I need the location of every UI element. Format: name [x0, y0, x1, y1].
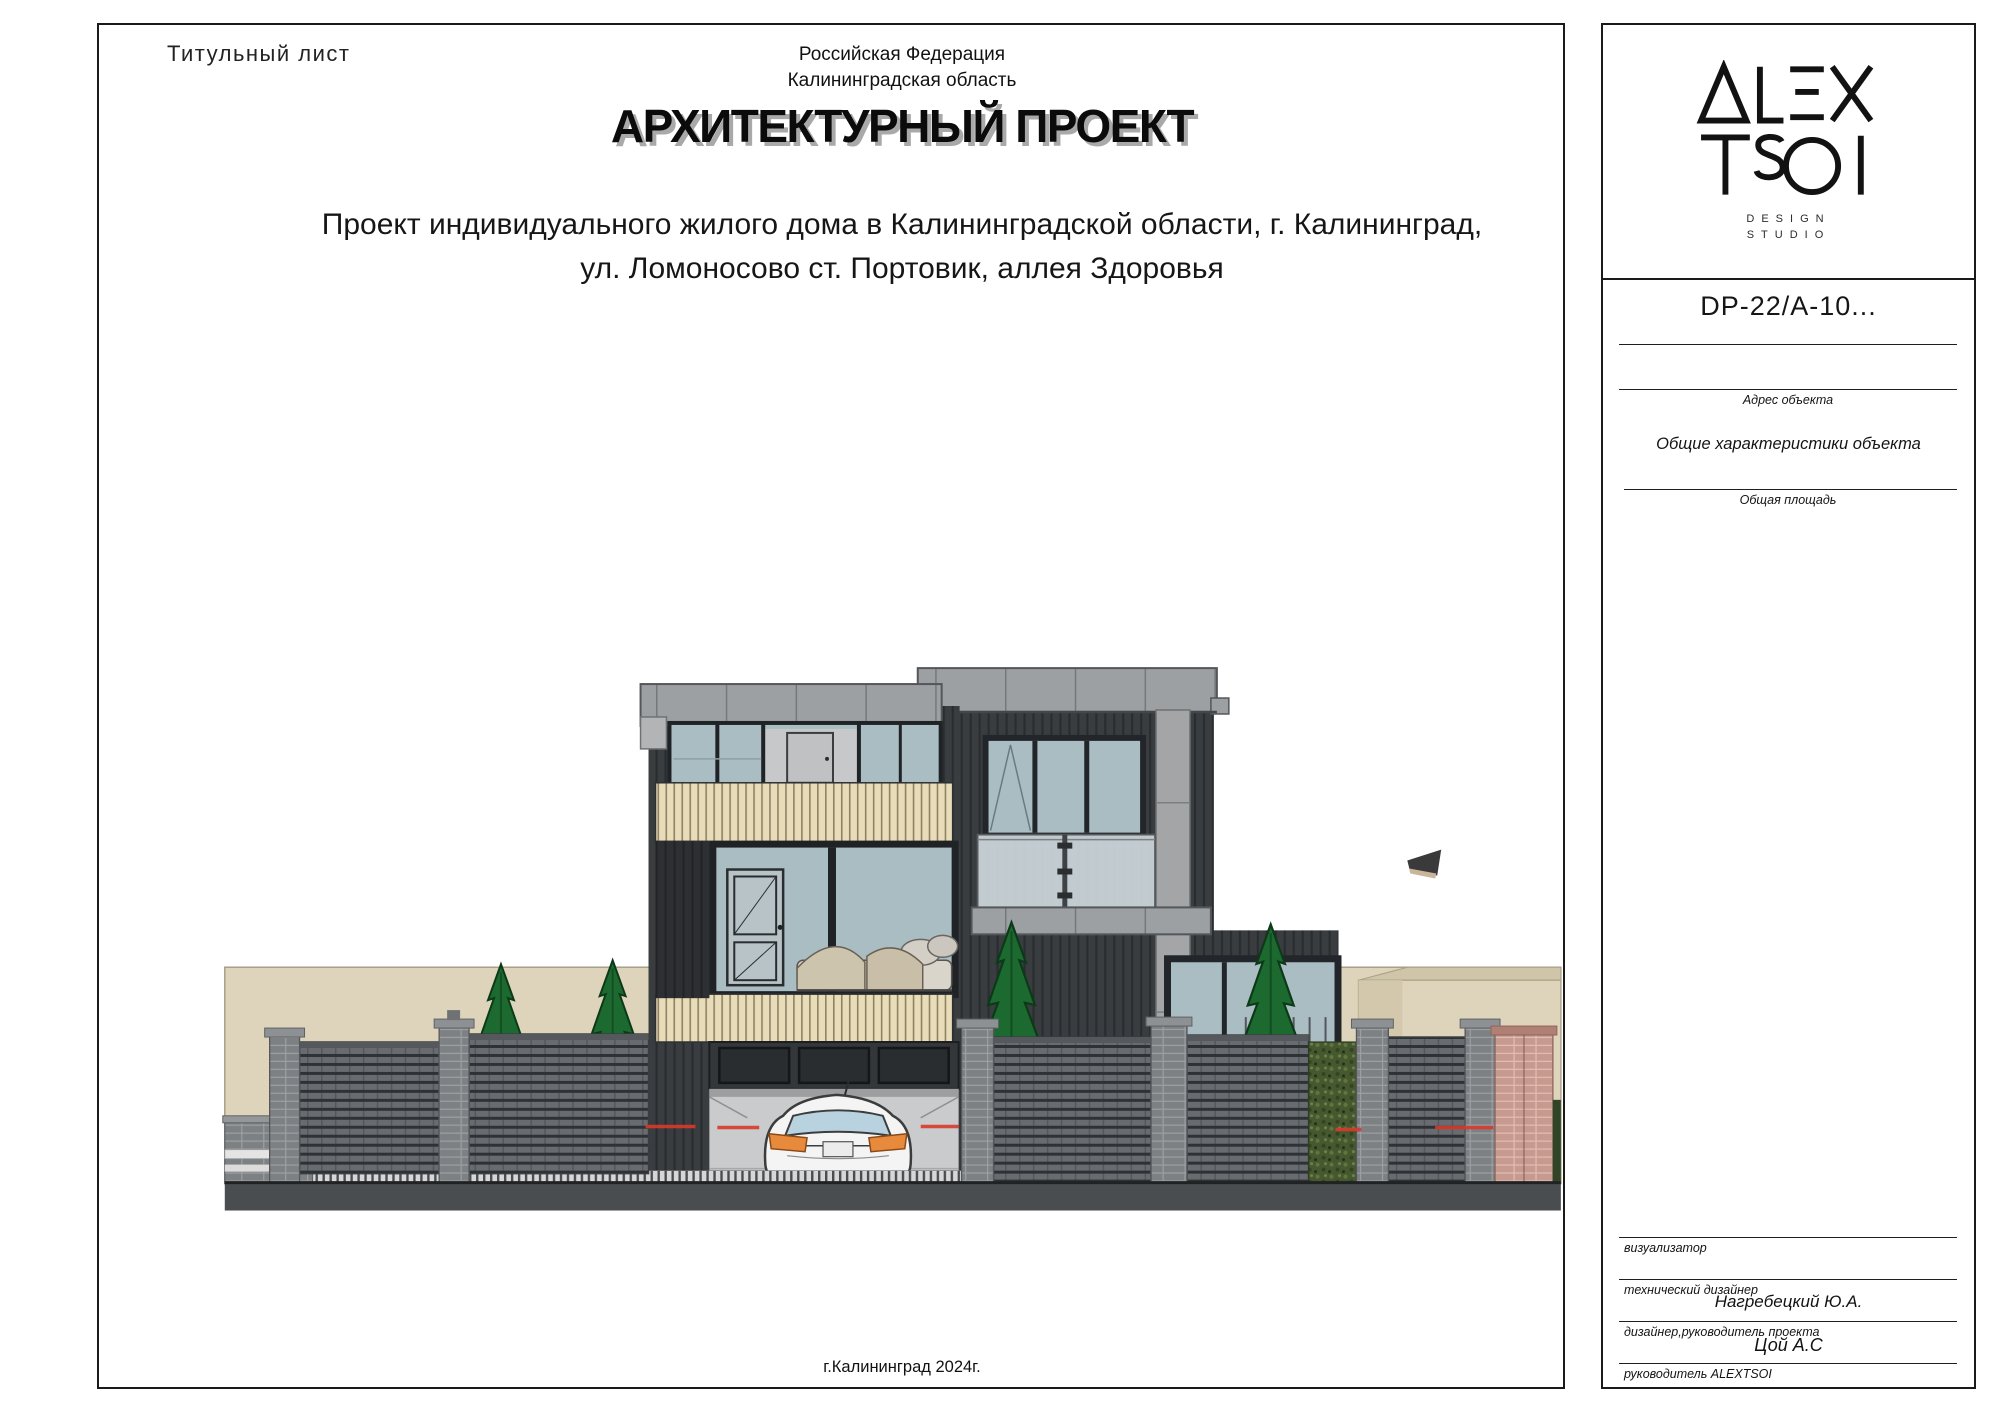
signature-line: [1619, 1237, 1957, 1238]
signature-line: [1619, 1279, 1957, 1280]
logo-tagline: DESIGN STUDIO: [1746, 211, 1830, 243]
signature-label: дизайнер,руководитель проекта: [1624, 1325, 1957, 1339]
signature-label: руководитель ALEXTSOI: [1624, 1367, 1957, 1381]
title-block: DESIGN STUDIO DP-22/A-10... Адрес объект…: [1601, 23, 1976, 1389]
signature-label: технический дизайнер: [1624, 1283, 1957, 1297]
section-title: Общие характеристики объекта: [1603, 435, 1974, 454]
signature-line: [1619, 1321, 1957, 1322]
alex-tsoi-logo-icon: [1696, 60, 1881, 203]
penthouse-glazing: [669, 723, 940, 785]
project-code: DP-22/A-10...: [1603, 291, 1974, 322]
area-label: Общая площадь: [1619, 493, 1957, 507]
house-left-tower: [641, 684, 960, 1185]
car-rear-window: [785, 1110, 891, 1135]
divider: [1619, 389, 1957, 390]
house-elevation-drawing: [99, 25, 1563, 1387]
ivy-panel: [1309, 1042, 1357, 1184]
upper-window: [983, 735, 1147, 839]
address-label: Адрес объекта: [1619, 393, 1957, 407]
divider: [1624, 489, 1957, 490]
title-sheet: Титульный лист Российская Федерация Кали…: [0, 0, 2000, 1414]
ground: [225, 1183, 1561, 1211]
footer-city-year: г.Калининград 2024г.: [239, 1358, 1565, 1377]
signature-label: визуализатор: [1624, 1241, 1957, 1255]
divider: [1619, 344, 1957, 345]
studio-logo: DESIGN STUDIO: [1603, 25, 1974, 280]
main-frame: Титульный лист Российская Федерация Кали…: [97, 23, 1565, 1389]
taillight-left: [769, 1134, 807, 1152]
pink-brick-pillar: [1491, 1026, 1557, 1184]
signature-line: [1619, 1363, 1957, 1364]
bedroom-window: [709, 841, 958, 999]
taillight-right: [869, 1134, 907, 1152]
